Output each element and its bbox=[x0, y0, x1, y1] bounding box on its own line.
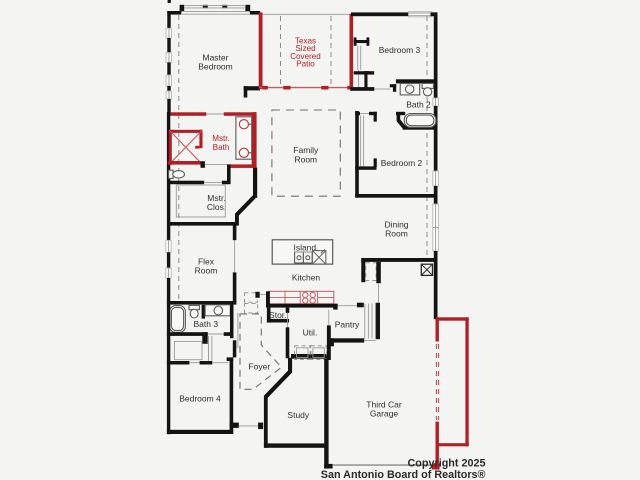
svg-text:Clos.: Clos. bbox=[207, 202, 226, 212]
svg-text:Garage: Garage bbox=[370, 408, 399, 418]
svg-text:Copyright 2025: Copyright 2025 bbox=[408, 457, 486, 469]
svg-text:San Antonio Board of Realtors®: San Antonio Board of Realtors® bbox=[321, 469, 486, 480]
svg-text:Room: Room bbox=[294, 154, 317, 164]
svg-text:Foyer: Foyer bbox=[248, 361, 270, 371]
svg-text:Patio: Patio bbox=[296, 60, 315, 69]
svg-text:Bath: Bath bbox=[213, 143, 230, 152]
svg-text:Room: Room bbox=[195, 266, 218, 276]
svg-text:Pantry: Pantry bbox=[335, 319, 360, 329]
svg-text:Bedroom 3: Bedroom 3 bbox=[379, 45, 421, 55]
svg-text:Mstr.: Mstr. bbox=[212, 134, 230, 143]
svg-text:Stor.: Stor. bbox=[269, 310, 286, 320]
svg-text:Kitchen: Kitchen bbox=[292, 273, 321, 283]
svg-text:Bedroom: Bedroom bbox=[198, 62, 233, 72]
svg-text:Bath 3: Bath 3 bbox=[194, 319, 219, 329]
svg-text:Util.: Util. bbox=[303, 328, 318, 338]
svg-text:Room: Room bbox=[385, 229, 408, 239]
svg-text:Bedroom 4: Bedroom 4 bbox=[179, 394, 221, 404]
svg-text:Bath 2: Bath 2 bbox=[406, 100, 431, 110]
svg-text:Bedroom 2: Bedroom 2 bbox=[381, 158, 423, 168]
svg-text:Study: Study bbox=[287, 410, 309, 420]
